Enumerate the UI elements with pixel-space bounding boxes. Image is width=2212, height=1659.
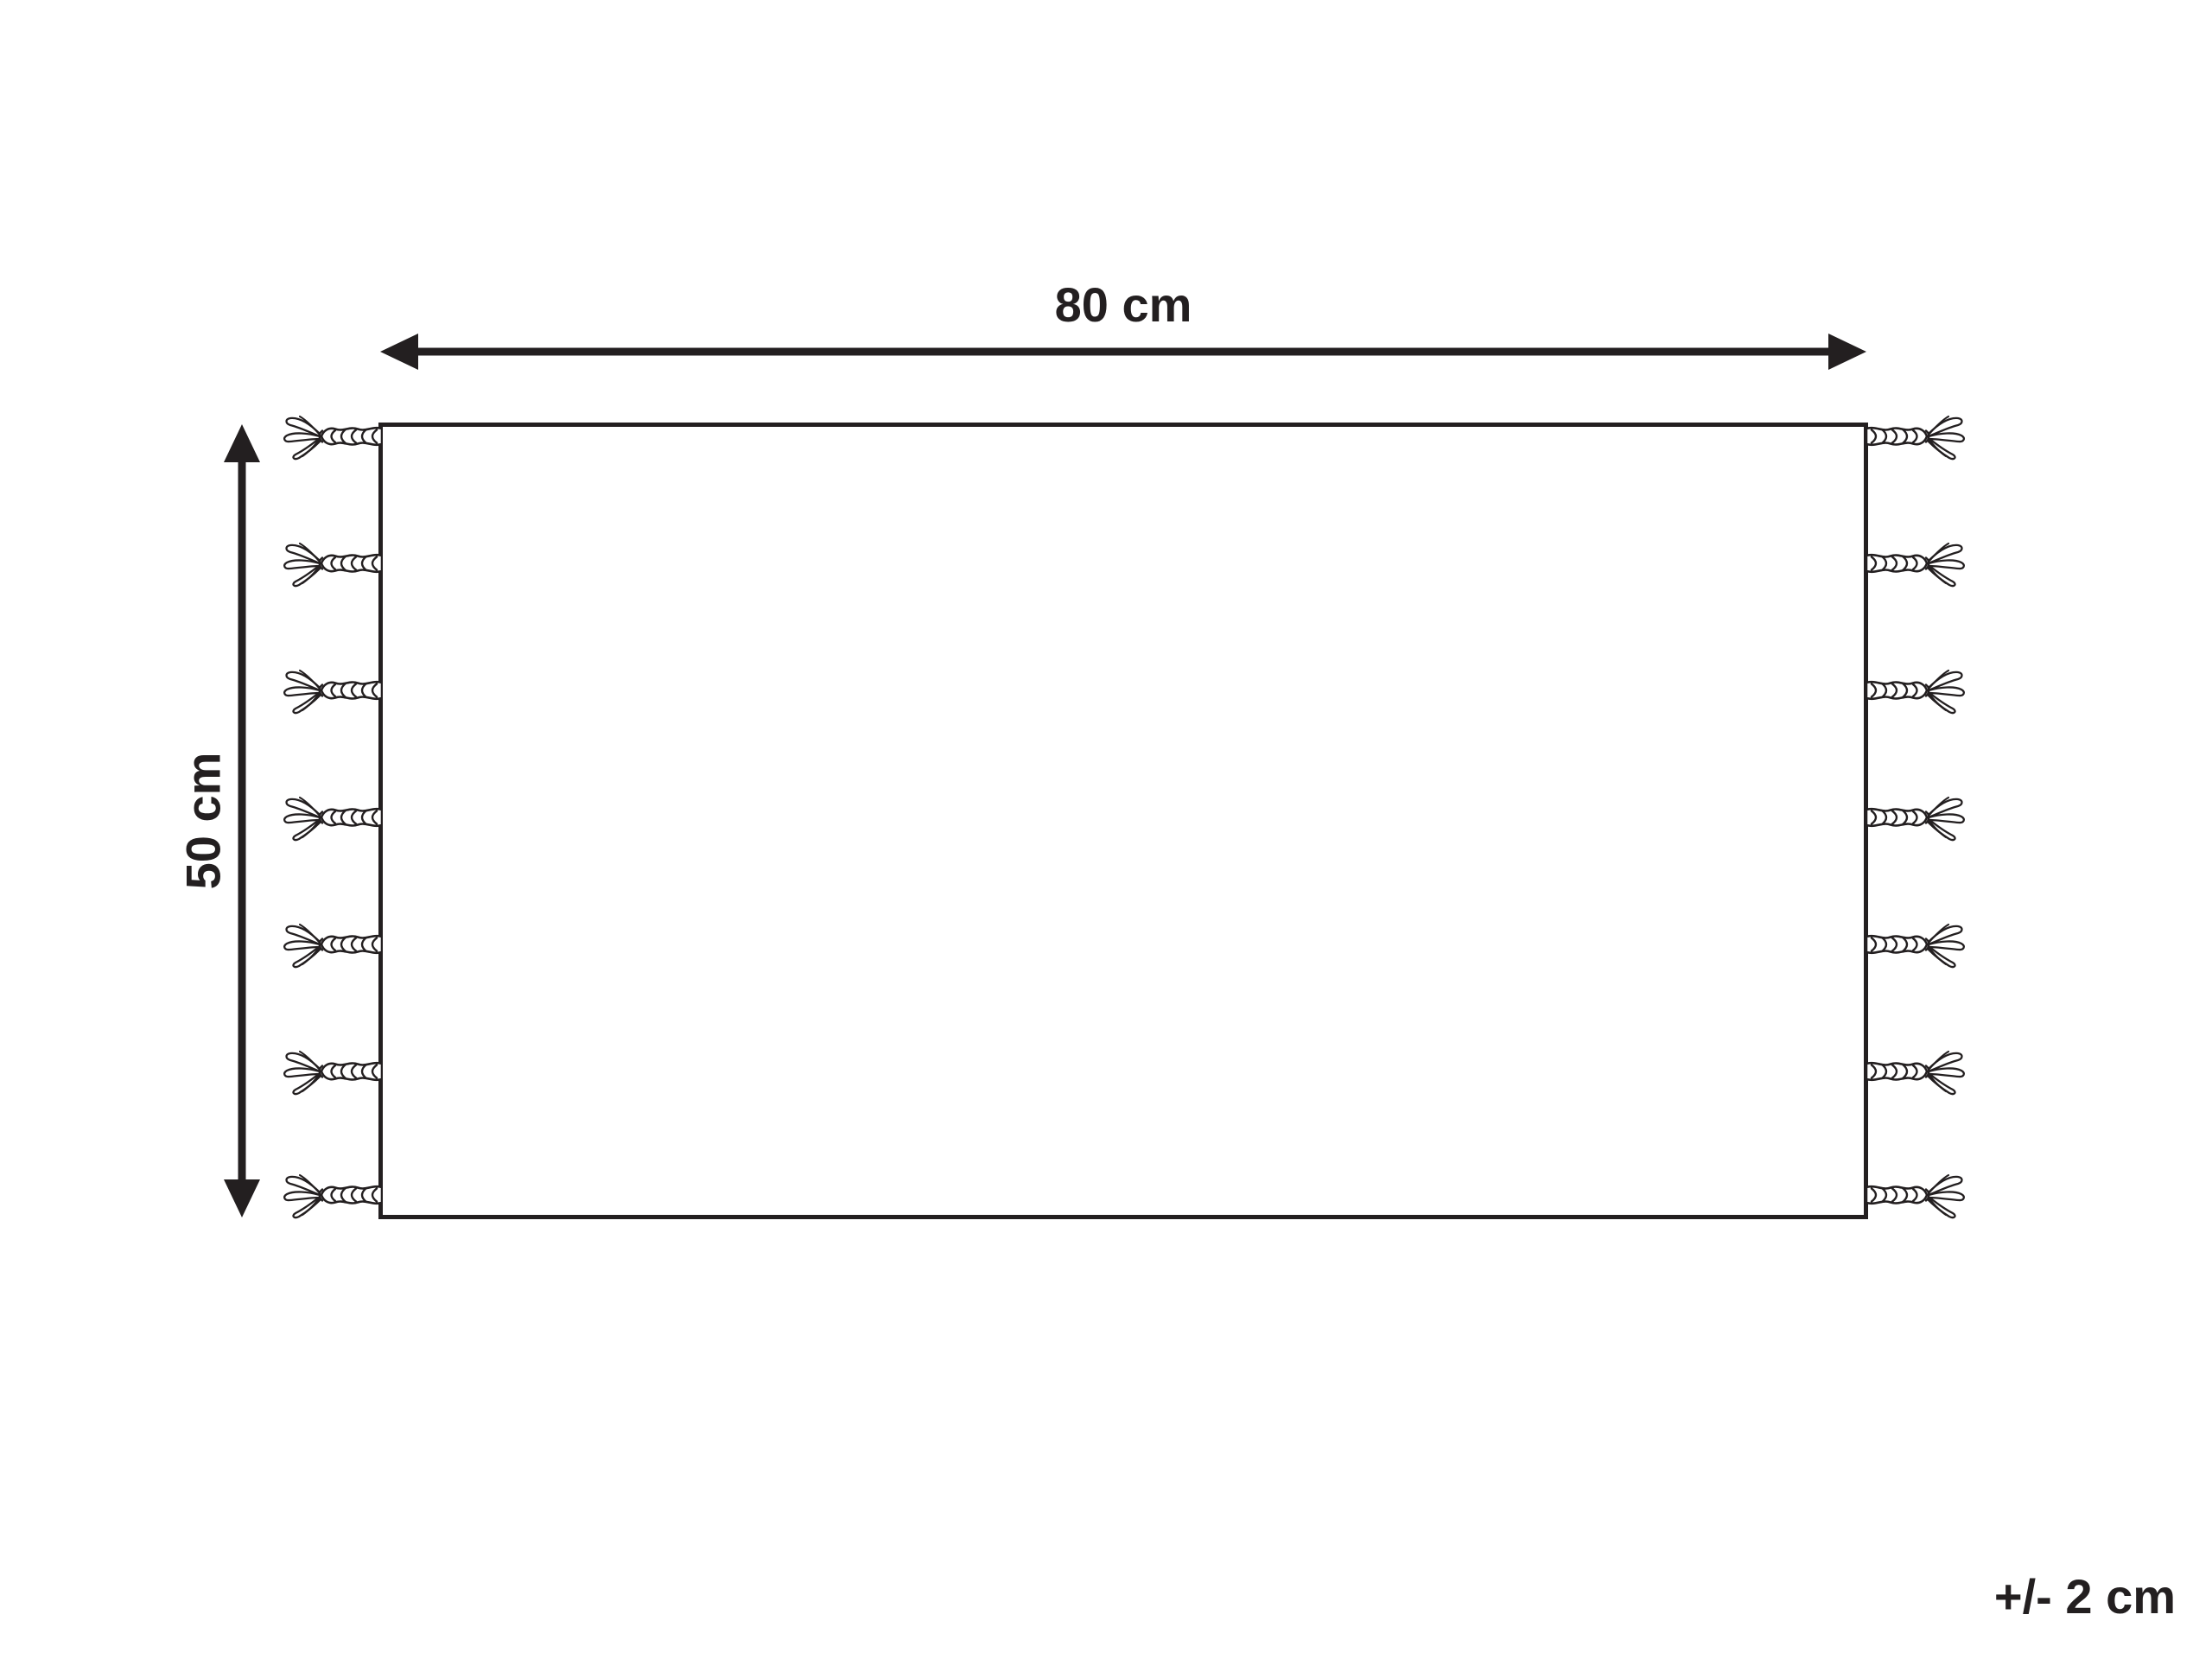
tassel-icon	[1866, 791, 1972, 844]
height-label: 50 cm	[179, 753, 227, 890]
dimension-diagram: 80 cm 50 cm +/- 2 cm	[0, 0, 2212, 1659]
tassel-icon	[1866, 537, 1972, 590]
tassel-icon	[1866, 1045, 1972, 1098]
rug-outline	[378, 423, 1868, 1219]
tassel-icon	[1866, 410, 1972, 463]
width-dimension-arrow-icon	[378, 326, 1868, 378]
tolerance-label: +/- 2 cm	[1994, 1573, 2176, 1621]
tassel-icon	[1866, 1168, 1972, 1222]
tassel-icon	[276, 410, 382, 463]
width-label: 80 cm	[1055, 281, 1192, 329]
tassel-icon	[276, 537, 382, 590]
tassel-icon	[276, 1168, 382, 1222]
tassel-icon	[1866, 918, 1972, 971]
tassel-icon	[276, 1045, 382, 1098]
tassel-icon	[1866, 664, 1972, 717]
tassel-icon	[276, 918, 382, 971]
tassel-icon	[276, 791, 382, 844]
tassel-icon	[276, 664, 382, 717]
